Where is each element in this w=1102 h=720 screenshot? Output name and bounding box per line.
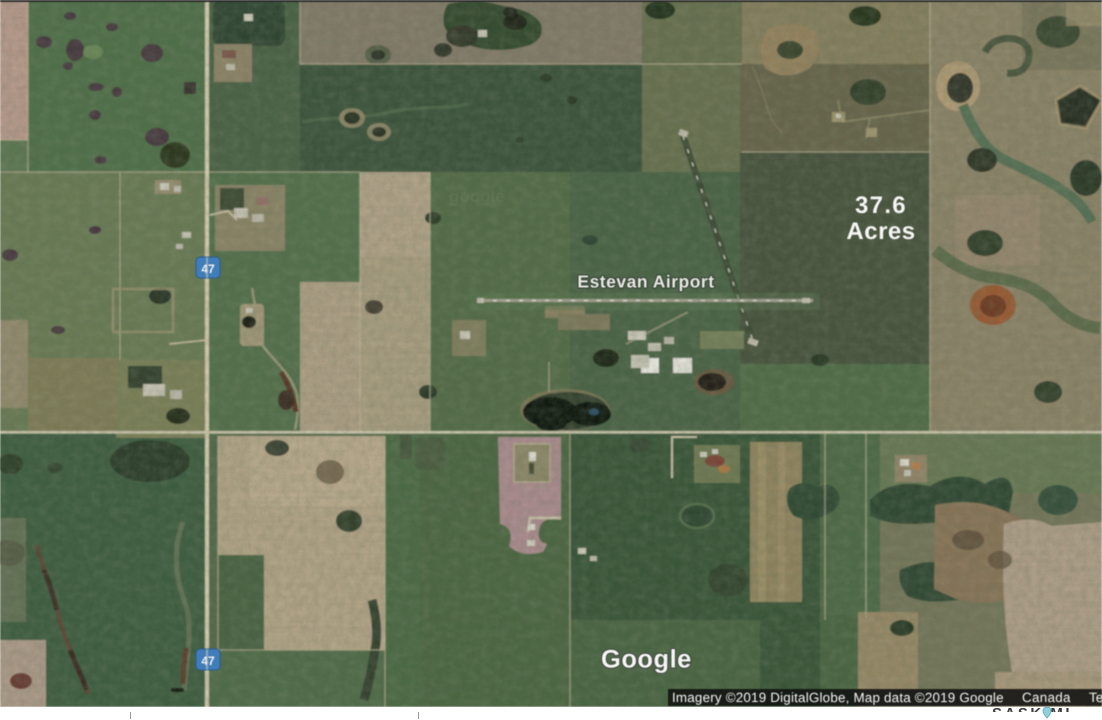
- svg-text:google: google: [449, 187, 505, 206]
- svg-text:47: 47: [201, 654, 215, 668]
- svg-text:Google: Google: [601, 646, 692, 674]
- svg-text:37.6: 37.6: [855, 192, 907, 219]
- svg-text:Canada: Canada: [1022, 690, 1071, 705]
- svg-text:47: 47: [201, 262, 215, 276]
- svg-text:Imagery ©2019 DigitalGlobe, Ma: Imagery ©2019 DigitalGlobe, Map data ©20…: [672, 690, 1004, 705]
- svg-text:Te: Te: [1089, 690, 1102, 705]
- svg-text:Acres: Acres: [846, 218, 915, 245]
- svg-text:Estevan Airport: Estevan Airport: [577, 271, 714, 291]
